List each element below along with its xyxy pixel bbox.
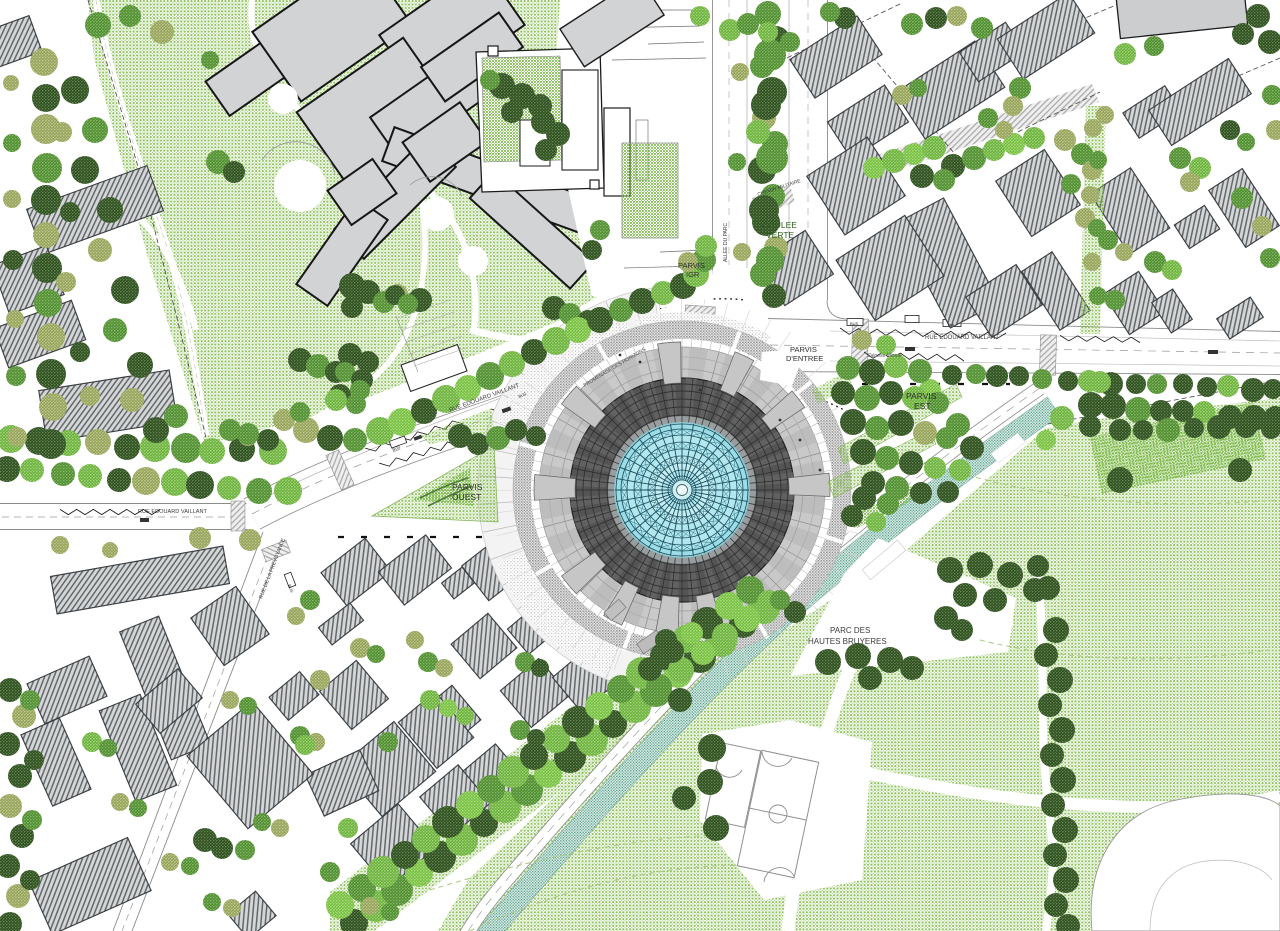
svg-text:VERTE: VERTE: [766, 230, 795, 240]
svg-text:PARVIS: PARVIS: [906, 391, 937, 401]
svg-text:ALLEE DU PARC: ALLEE DU PARC: [723, 223, 729, 262]
svg-text:PARVIS: PARVIS: [790, 345, 817, 354]
svg-text:COULEE: COULEE: [762, 220, 797, 230]
svg-text:BUS: BUS: [850, 321, 859, 326]
svg-text:HAUTES BRUYERES: HAUTES BRUYERES: [808, 637, 887, 646]
svg-text:Taxi: Taxi: [947, 322, 954, 327]
svg-text:PARVIS: PARVIS: [678, 261, 705, 270]
svg-text:RUE EDOUARD VAILLANT: RUE EDOUARD VAILLANT: [138, 509, 207, 515]
svg-text:OUEST: OUEST: [452, 492, 481, 502]
svg-text:PARC DES: PARC DES: [830, 626, 870, 635]
svg-text:EST: EST: [914, 401, 931, 411]
svg-text:Dépose Minute: Dépose Minute: [868, 353, 902, 359]
svg-text:RUE EDOUARD VAILLANT: RUE EDOUARD VAILLANT: [925, 335, 999, 341]
svg-text:PARVIS: PARVIS: [452, 482, 483, 492]
svg-text:D'ENTREE: D'ENTREE: [786, 354, 823, 363]
svg-text:IGR: IGR: [686, 270, 700, 279]
